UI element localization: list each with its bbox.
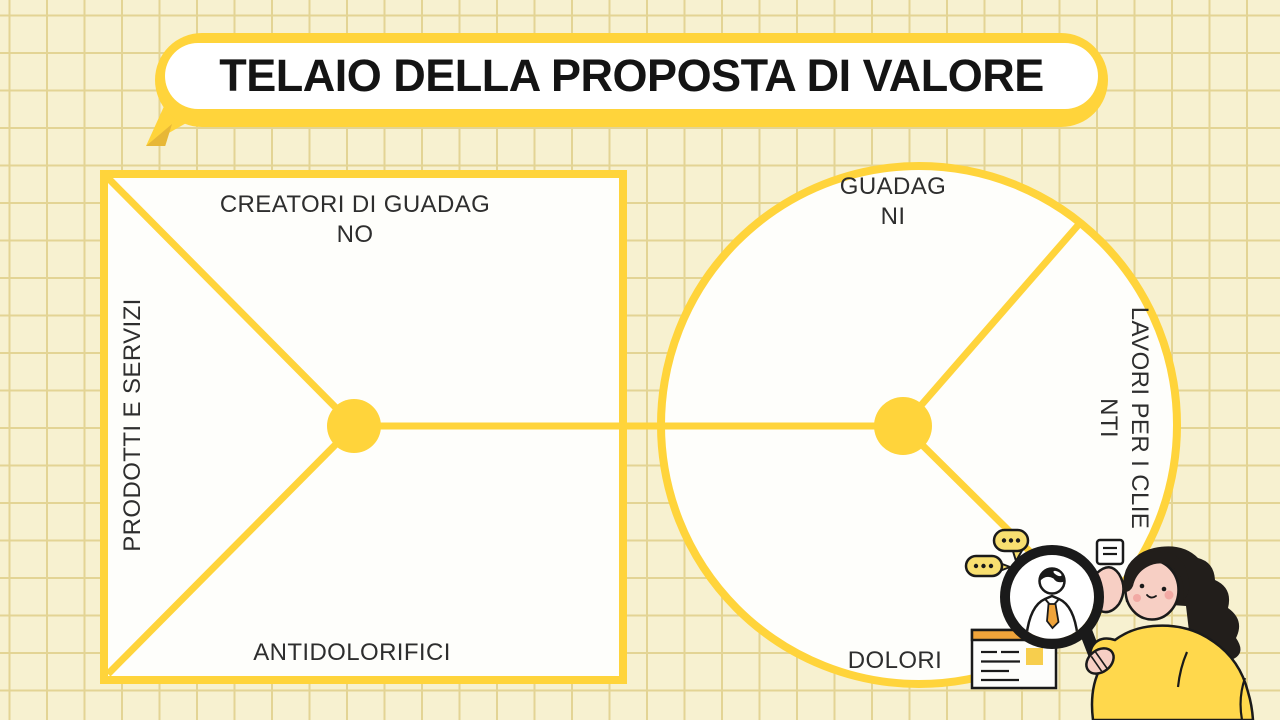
- eye: [1140, 584, 1145, 589]
- title-banner-inner: TELAIO DELLA PROPOSTA DI VALORE: [165, 43, 1098, 109]
- speech-bubble-icon: [966, 556, 1010, 576]
- eye: [1162, 587, 1167, 592]
- label-gains: GUADAG NI: [840, 172, 946, 232]
- mouth: [1147, 595, 1156, 598]
- hair-back: [1125, 546, 1241, 661]
- title-banner: TELAIO DELLA PROPOSTA DI VALORE: [155, 33, 1108, 127]
- blush: [1165, 591, 1174, 600]
- label-products-services: PRODOTTI E SERVIZI: [118, 298, 148, 551]
- woman: [1081, 546, 1253, 720]
- blush: [1133, 594, 1141, 602]
- label-gain-creators: CREATORI DI GUADAG NO: [220, 190, 490, 250]
- sweater-body: [1090, 626, 1253, 720]
- arm-contour-line: [1241, 678, 1245, 720]
- label-pain-relievers: ANTIDOLORIFICI: [253, 638, 451, 668]
- hand: [1089, 567, 1123, 612]
- note-icon: [1097, 540, 1123, 564]
- face: [1126, 561, 1179, 620]
- hand-gripping-handle: [1081, 643, 1118, 679]
- person-in-magnifier-icon: [1026, 569, 1078, 641]
- label-pains: DOLORI: [848, 646, 942, 676]
- label-customer-jobs: LAVORI PER I CLIE NTI: [1093, 307, 1155, 529]
- hair-front: [1123, 551, 1189, 601]
- speech-bubble-icon: [994, 530, 1028, 561]
- page-title: TELAIO DELLA PROPOSTA DI VALORE: [219, 50, 1044, 102]
- value-proposition-canvas: TELAIO DELLA PROPOSTA DI VALORE CREATORI…: [0, 0, 1280, 720]
- document-icon: [972, 630, 1056, 688]
- sweater-fold-line: [1178, 652, 1187, 687]
- magnifier-handle: [1086, 632, 1115, 707]
- magnifier-icon: [1005, 550, 1115, 707]
- circle-center-dot: [874, 397, 932, 455]
